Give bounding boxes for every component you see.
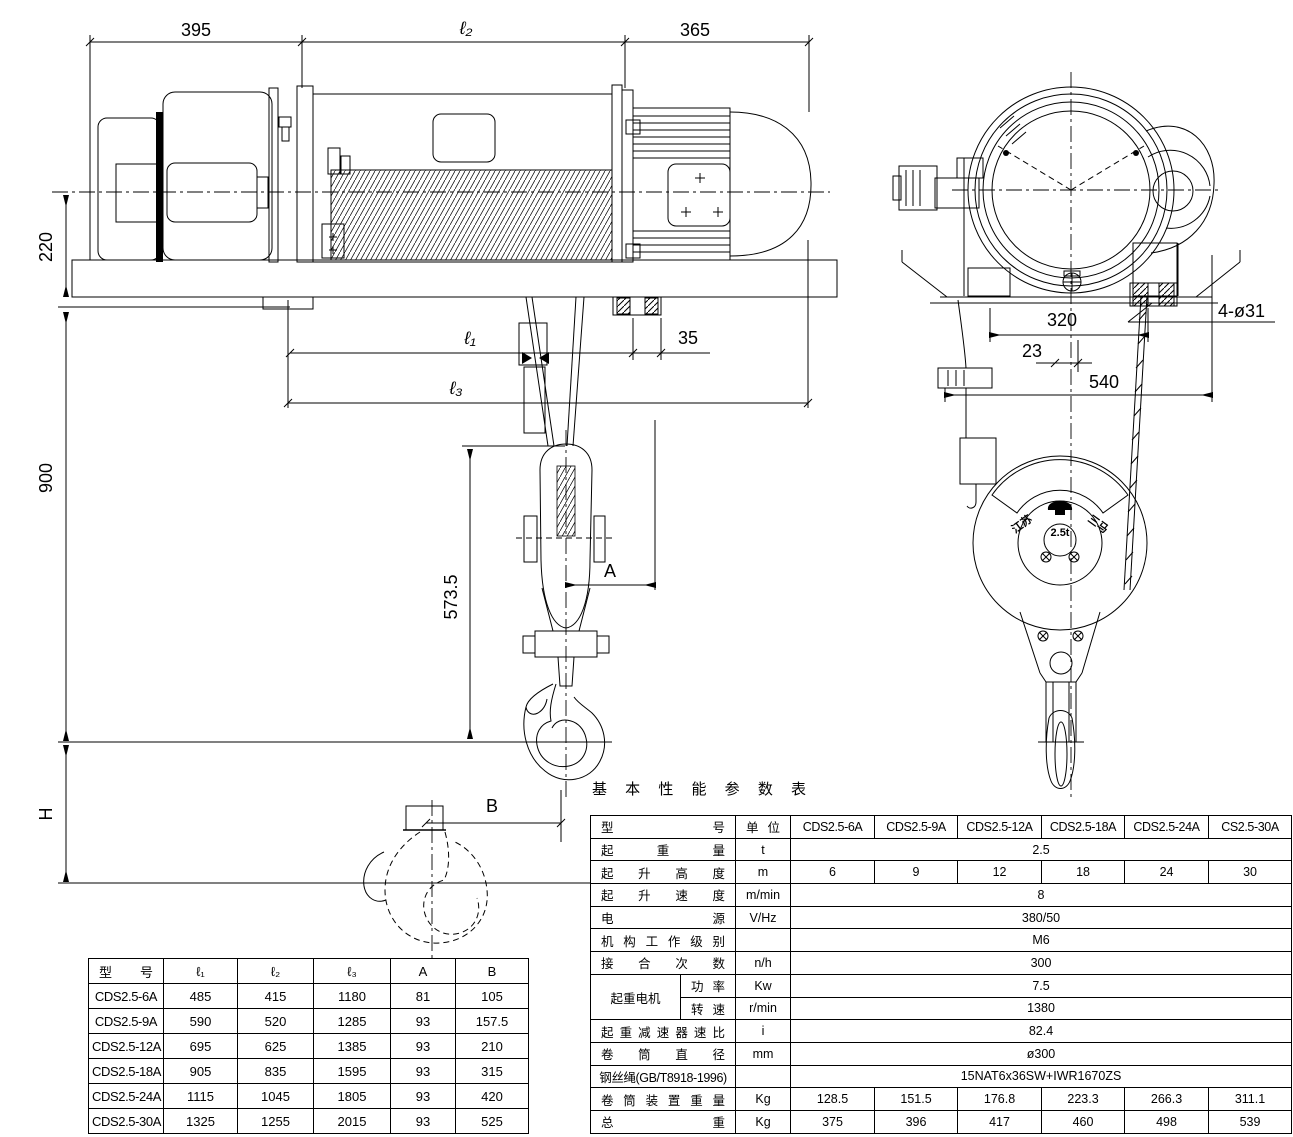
table-cell: 1595 — [314, 1059, 391, 1084]
table-row: 卷 筒 装 置 重 量 Kg 128.5 151.5 176.8 223.3 2… — [591, 1088, 1292, 1111]
table-cell: 93 — [391, 1084, 456, 1109]
table-cell: 起 升 高 度 — [591, 861, 736, 884]
dim-label-l1: ℓ₁ — [463, 328, 476, 348]
table-row: 起重电机 功 率 Kw 7.5 — [591, 974, 1292, 997]
hook-block-side-view — [462, 297, 616, 800]
table-cell: CDS2.5-9A — [875, 816, 958, 839]
dim-label-l2: ℓ₂ — [459, 18, 473, 38]
table-cell: 128.5 — [791, 1088, 875, 1111]
table-cell: 315 — [456, 1059, 529, 1084]
table-row: CDS2.5-24A 1115 1045 1805 93 420 — [89, 1084, 529, 1109]
table-cell: V/Hz — [736, 906, 791, 929]
table-cell: 300 — [791, 952, 1292, 975]
table-row: 机 构 工 作 级 别 M6 — [591, 929, 1292, 952]
table-header-row: 型 号 单 位 CDS2.5-6A CDS2.5-9A CDS2.5-12A C… — [591, 816, 1292, 839]
table-cell: 835 — [238, 1059, 314, 1084]
table-cell: 转 速 — [681, 997, 736, 1020]
table-cell: 24 — [1125, 861, 1209, 884]
table-cell: 7.5 — [791, 974, 1292, 997]
table-row: 起 升 高 度 m 6 9 12 18 24 30 — [591, 861, 1292, 884]
table-row: CDS2.5-30A 1325 1255 2015 93 525 — [89, 1109, 529, 1134]
dim-label-573-5: 573.5 — [441, 574, 461, 619]
table-cell: 单 位 — [736, 816, 791, 839]
table-cell: 539 — [1209, 1110, 1292, 1133]
table-cell: 卷 筒 直 径 — [591, 1042, 736, 1065]
dim-label-l3: ℓ₃ — [449, 378, 463, 398]
table-cell — [736, 929, 791, 952]
table-cell: 176.8 — [958, 1088, 1042, 1111]
table-row: CDS2.5-6A 485 415 1180 81 105 — [89, 984, 529, 1009]
table-cell: 1325 — [164, 1109, 238, 1134]
dim-label-4-d31: 4-ø31 — [1218, 301, 1265, 321]
table-cell: CDS2.5-9A — [89, 1009, 164, 1034]
table-cell: ℓ₃ — [314, 959, 391, 984]
table-row: 转 速 r/min 1380 — [591, 997, 1292, 1020]
dim-label-220: 220 — [36, 232, 56, 262]
table-row: CDS2.5-9A 590 520 1285 93 157.5 — [89, 1009, 529, 1034]
table-cell: CS2.5-30A — [1209, 816, 1292, 839]
table-cell: 8 — [791, 884, 1292, 907]
table-cell: 卷 筒 装 置 重 量 — [591, 1088, 736, 1111]
table-cell: 151.5 — [875, 1088, 958, 1111]
table-cell: CDS2.5-30A — [89, 1109, 164, 1134]
table-row: 接 合 次 数 n/h 300 — [591, 952, 1292, 975]
table-cell: 81 — [391, 984, 456, 1009]
table-cell: 9 — [875, 861, 958, 884]
table-cell: mm — [736, 1042, 791, 1065]
dimension-table: 型 号 ℓ₁ ℓ₂ ℓ₃ A B CDS2.5-6A 485 415 1180 … — [88, 958, 529, 1134]
table-cell: M6 — [791, 929, 1292, 952]
table-cell: 375 — [791, 1110, 875, 1133]
table-cell: 1380 — [791, 997, 1292, 1020]
logo-text-center: 2.5t — [1051, 527, 1070, 539]
table-cell — [736, 1065, 791, 1088]
engineering-drawing-sheet: 395 ℓ₂ 365 220 900 H 573.5 ℓ₁ 35 — [0, 0, 1293, 1137]
table-cell: 210 — [456, 1034, 529, 1059]
table-cell: CDS2.5-12A — [958, 816, 1042, 839]
table-cell: 695 — [164, 1034, 238, 1059]
table-cell: 82.4 — [791, 1020, 1292, 1043]
table-cell: CDS2.5-24A — [1125, 816, 1209, 839]
table-cell: 钢丝绳(GB/T8918-1996) — [591, 1065, 736, 1088]
logo-text-left: 江苏 — [1009, 512, 1035, 536]
table-cell: 485 — [164, 984, 238, 1009]
table-cell: 520 — [238, 1009, 314, 1034]
table-cell: 1805 — [314, 1084, 391, 1109]
lowered-hook-phantom — [364, 800, 488, 962]
hook-block-end-view: 江苏 2.5t 三马 — [973, 456, 1147, 789]
table-cell: CDS2.5-18A — [89, 1059, 164, 1084]
table-cell: 460 — [1042, 1110, 1125, 1133]
dim-label-35: 35 — [678, 328, 698, 348]
table-row: 电 源 V/Hz 380/50 — [591, 906, 1292, 929]
table-cell: 498 — [1125, 1110, 1209, 1133]
side-view-dimensions: 395 ℓ₂ 365 220 900 H 573.5 ℓ₁ 35 — [36, 18, 813, 883]
table-cell: 625 — [238, 1034, 314, 1059]
table-cell: 起重电机 — [591, 974, 681, 1019]
dim-label-540: 540 — [1089, 372, 1119, 392]
table-cell: 420 — [456, 1084, 529, 1109]
table-cell: n/h — [736, 952, 791, 975]
table-row: 起 升 速 度 m/min 8 — [591, 884, 1292, 907]
table-cell: 机 构 工 作 级 别 — [591, 929, 736, 952]
table-cell: CDS2.5-12A — [89, 1034, 164, 1059]
table-cell: A — [391, 959, 456, 984]
table-header-row: 型 号 ℓ₁ ℓ₂ ℓ₃ A B — [89, 959, 529, 984]
spec-table-title: 基 本 性 能 参 数 表 — [592, 778, 813, 799]
table-cell: Kg — [736, 1110, 791, 1133]
table-cell: m — [736, 861, 791, 884]
dim-label-365: 365 — [680, 20, 710, 40]
table-cell: 1255 — [238, 1109, 314, 1134]
table-cell: 93 — [391, 1034, 456, 1059]
table-cell: 905 — [164, 1059, 238, 1084]
table-cell: ø300 — [791, 1042, 1292, 1065]
table-cell: 266.3 — [1125, 1088, 1209, 1111]
table-cell: 417 — [958, 1110, 1042, 1133]
table-cell: 93 — [391, 1009, 456, 1034]
table-cell: 1045 — [238, 1084, 314, 1109]
hoist-side-view — [52, 85, 837, 315]
performance-spec-table: 型 号 单 位 CDS2.5-6A CDS2.5-9A CDS2.5-12A C… — [590, 815, 1292, 1134]
table-cell: CDS2.5-6A — [89, 984, 164, 1009]
table-cell: 1385 — [314, 1034, 391, 1059]
dim-label-h: H — [36, 808, 56, 821]
table-cell: 30 — [1209, 861, 1292, 884]
table-cell: ℓ₂ — [238, 959, 314, 984]
table-cell: 6 — [791, 861, 875, 884]
table-cell: 电 源 — [591, 906, 736, 929]
table-cell: 起 重 量 — [591, 838, 736, 861]
table-row: CDS2.5-12A 695 625 1385 93 210 — [89, 1034, 529, 1059]
table-cell: 2015 — [314, 1109, 391, 1134]
table-cell: r/min — [736, 997, 791, 1020]
table-cell: 型 号 — [591, 816, 736, 839]
table-cell: 12 — [958, 861, 1042, 884]
dim-label-320: 320 — [1047, 310, 1077, 330]
table-row: CDS2.5-18A 905 835 1595 93 315 — [89, 1059, 529, 1084]
table-row: 钢丝绳(GB/T8918-1996) 15NAT6x36SW+IWR1670ZS — [591, 1065, 1292, 1088]
table-cell: CDS2.5-18A — [1042, 816, 1125, 839]
table-cell: Kg — [736, 1088, 791, 1111]
table-cell: i — [736, 1020, 791, 1043]
table-cell: 2.5 — [791, 838, 1292, 861]
end-view-dimensions: 320 23 540 4-ø31 — [945, 255, 1275, 402]
table-cell: 功 率 — [681, 974, 736, 997]
table-cell: 105 — [456, 984, 529, 1009]
dim-label-23: 23 — [1022, 341, 1042, 361]
table-cell: 接 合 次 数 — [591, 952, 736, 975]
table-cell: t — [736, 838, 791, 861]
table-cell: 起 升 速 度 — [591, 884, 736, 907]
table-cell: 1115 — [164, 1084, 238, 1109]
table-cell: 415 — [238, 984, 314, 1009]
dim-label-395: 395 — [181, 20, 211, 40]
brand-logo-mark — [1048, 501, 1072, 515]
dim-label-a: A — [604, 561, 616, 581]
table-cell: 223.3 — [1042, 1088, 1125, 1111]
table-cell: 311.1 — [1209, 1088, 1292, 1111]
table-cell: 15NAT6x36SW+IWR1670ZS — [791, 1065, 1292, 1088]
table-cell: ℓ₁ — [164, 959, 238, 984]
table-cell: 93 — [391, 1109, 456, 1134]
table-cell: 1285 — [314, 1009, 391, 1034]
table-cell: 157.5 — [456, 1009, 529, 1034]
dim-label-b: B — [486, 796, 498, 816]
table-cell: Kw — [736, 974, 791, 997]
table-cell: B — [456, 959, 529, 984]
table-cell: 93 — [391, 1059, 456, 1084]
table-cell: CDS2.5-6A — [791, 816, 875, 839]
table-row: 起 重 减 速 器 速 比 i 82.4 — [591, 1020, 1292, 1043]
table-cell: CDS2.5-24A — [89, 1084, 164, 1109]
table-row: 卷 筒 直 径 mm ø300 — [591, 1042, 1292, 1065]
table-cell: 总 重 — [591, 1110, 736, 1133]
hoist-end-view — [893, 72, 1240, 800]
table-cell: 396 — [875, 1110, 958, 1133]
table-cell: 1180 — [314, 984, 391, 1009]
table-row: 起 重 量 t 2.5 — [591, 838, 1292, 861]
table-row: 总 重 Kg 375 396 417 460 498 539 — [591, 1110, 1292, 1133]
table-cell: 型 号 — [89, 959, 164, 984]
table-cell: m/min — [736, 884, 791, 907]
table-cell: 590 — [164, 1009, 238, 1034]
dim-label-900: 900 — [36, 463, 56, 493]
table-cell: 380/50 — [791, 906, 1292, 929]
table-cell: 525 — [456, 1109, 529, 1134]
table-cell: 起 重 减 速 器 速 比 — [591, 1020, 736, 1043]
table-cell: 18 — [1042, 861, 1125, 884]
